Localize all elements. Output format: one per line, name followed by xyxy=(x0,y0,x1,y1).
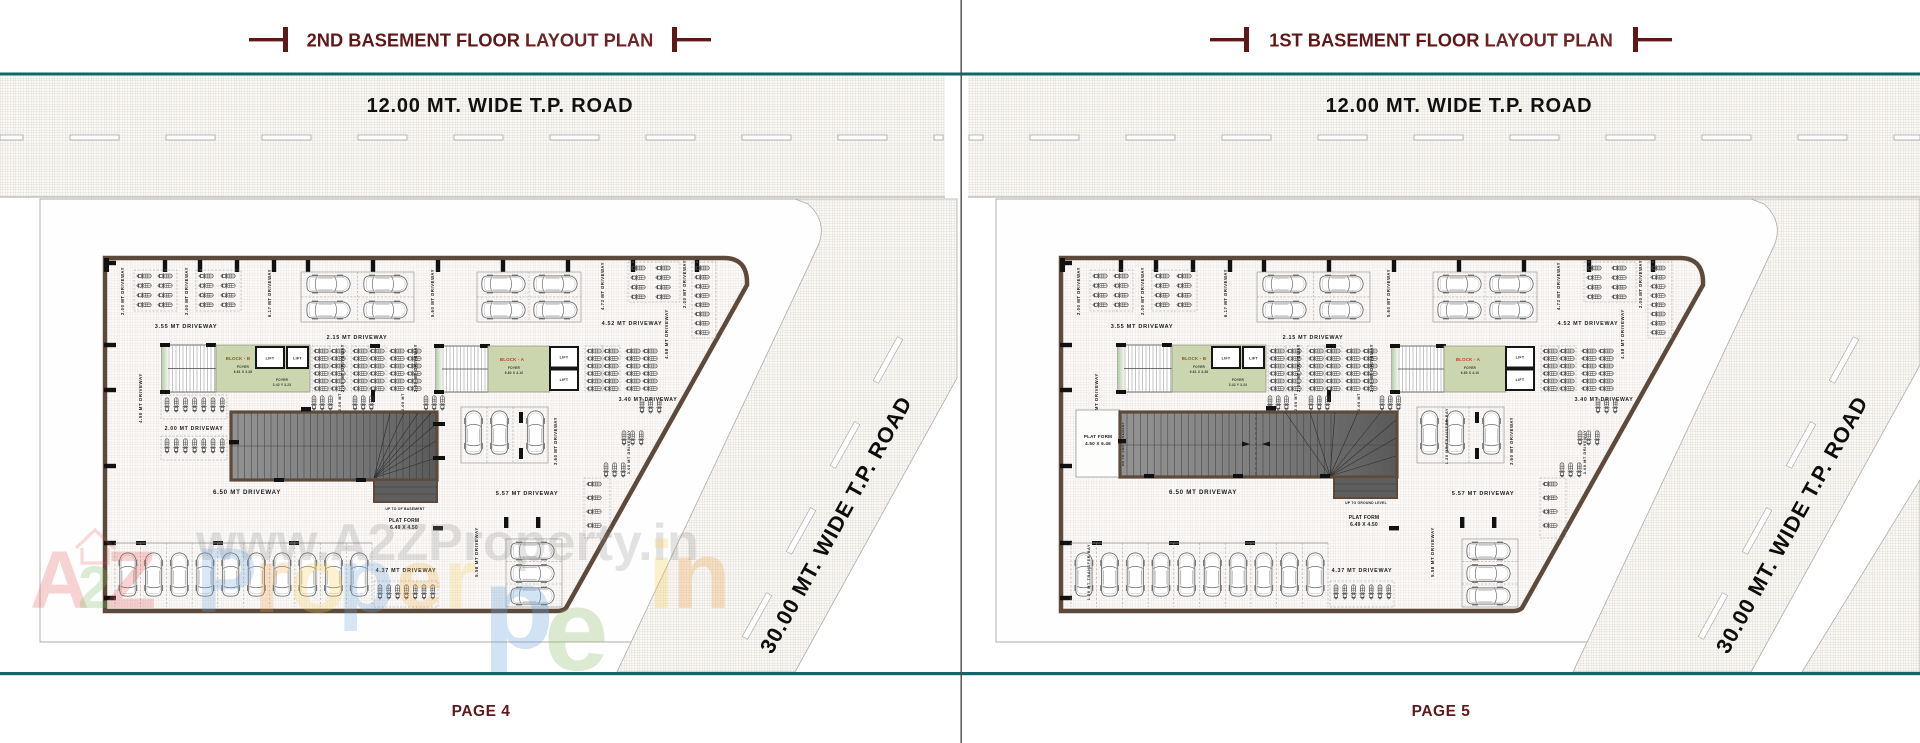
svg-text:PAGE 4: PAGE 4 xyxy=(452,703,511,720)
svg-text:3.60 MT DRIVEWAY: 3.60 MT DRIVEWAY xyxy=(1509,417,1514,465)
svg-text:FOYER: FOYER xyxy=(1232,378,1244,382)
svg-text:3.55 MT DRIVEWAY: 3.55 MT DRIVEWAY xyxy=(155,324,218,330)
svg-text:4.58 MT DRIVEWAY: 4.58 MT DRIVEWAY xyxy=(664,309,669,359)
svg-text:FOYER: FOYER xyxy=(1464,366,1476,370)
svg-text:4.52 MT DRIVEWAY: 4.52 MT DRIVEWAY xyxy=(602,321,663,327)
svg-text:2ND BASEMENT FLOOR LAYOUT PLAN: 2ND BASEMENT FLOOR LAYOUT PLAN xyxy=(307,30,654,51)
svg-text:BLOCK - B: BLOCK - B xyxy=(226,356,250,361)
svg-text:4.52 MT DRIVEWAY: 4.52 MT DRIVEWAY xyxy=(1558,321,1619,327)
svg-text:FOYER: FOYER xyxy=(508,366,520,370)
svg-text:2.00 MT DRIVEWAY: 2.00 MT DRIVEWAY xyxy=(340,344,345,392)
svg-text:4.37 MT DRIVEWAY: 4.37 MT DRIVEWAY xyxy=(1332,568,1393,574)
svg-text:2.15 MT DRIVEWAY: 2.15 MT DRIVEWAY xyxy=(1283,335,1344,341)
svg-text:4.73 MT DRIVEWAY: 4.73 MT DRIVEWAY xyxy=(600,262,605,310)
svg-text:e: e xyxy=(544,565,609,695)
svg-text:n: n xyxy=(672,522,731,629)
svg-text:2.00 MT: 2.00 MT xyxy=(401,393,405,411)
svg-text:2.00 MT: 2.00 MT xyxy=(1294,393,1298,411)
svg-text:BLOCK - A: BLOCK - A xyxy=(500,357,525,362)
svg-text:3.40 MT DRIVEWAY: 3.40 MT DRIVEWAY xyxy=(1575,397,1634,403)
svg-text:3.55 MT DRIVEWAY: 3.55 MT DRIVEWAY xyxy=(1111,324,1174,330)
svg-text:LIFT: LIFT xyxy=(1516,378,1525,382)
svg-text:3.42 Y 3.23: 3.42 Y 3.23 xyxy=(1229,383,1247,387)
svg-text:1.20 MT TRANSFER BAY: 1.20 MT TRANSFER BAY xyxy=(1445,408,1449,464)
svg-text:5.60 MT DRIVEWAY: 5.60 MT DRIVEWAY xyxy=(1386,269,1391,317)
svg-text:UP TO GROUND LEVEL: UP TO GROUND LEVEL xyxy=(1345,501,1387,505)
svg-text:5.57 MT DRIVEWAY: 5.57 MT DRIVEWAY xyxy=(496,491,559,497)
svg-text:2.00 MT DRIVEWAY: 2.00 MT DRIVEWAY xyxy=(1369,344,1374,392)
svg-text:6.50 MT DRIVEWAY: 6.50 MT DRIVEWAY xyxy=(1169,489,1237,496)
svg-text:5.58 MT DRIVEWAY: 5.58 MT DRIVEWAY xyxy=(1430,527,1435,577)
svg-text:2.15 MT DRIVEWAY: 2.15 MT DRIVEWAY xyxy=(327,335,388,341)
svg-text:LIFT: LIFT xyxy=(560,356,569,360)
svg-text:LIFT: LIFT xyxy=(1249,357,1258,361)
svg-text:3.60 MT DRIVEWAY: 3.60 MT DRIVEWAY xyxy=(553,417,558,465)
svg-text:2.00 MT DRIVEWAY: 2.00 MT DRIVEWAY xyxy=(1140,267,1145,315)
svg-text:5.60 MT DRIVEWAY: 5.60 MT DRIVEWAY xyxy=(430,269,435,317)
svg-text:PLAT FORM: PLAT FORM xyxy=(1349,515,1380,521)
svg-text:4.73 MT DRIVEWAY: 4.73 MT DRIVEWAY xyxy=(1556,262,1561,310)
svg-text:DN TO 2ND BASEMENT: DN TO 2ND BASEMENT xyxy=(1121,422,1125,467)
svg-text:2.00 MT DRIVEWAY: 2.00 MT DRIVEWAY xyxy=(1296,344,1301,392)
svg-text:LIFT: LIFT xyxy=(1516,356,1525,360)
svg-text:2.00 MT: 2.00 MT xyxy=(1357,393,1361,411)
svg-text:p: p xyxy=(338,530,394,632)
svg-text:2.00 MT DRIVEWAY: 2.00 MT DRIVEWAY xyxy=(682,260,687,308)
svg-text:3.42 Y 3.23: 3.42 Y 3.23 xyxy=(273,383,291,387)
svg-text:12.00 MT. WIDE T.P. ROAD: 12.00 MT. WIDE T.P. ROAD xyxy=(367,95,634,117)
svg-text:6.50 MT DRIVEWAY: 6.50 MT DRIVEWAY xyxy=(213,489,281,496)
svg-text:6.80 X 4.10: 6.80 X 4.10 xyxy=(505,371,524,375)
svg-text:FOYER: FOYER xyxy=(237,365,249,369)
svg-text:FOYER: FOYER xyxy=(276,378,288,382)
svg-text:2.00 MT DRIVEWAY: 2.00 MT DRIVEWAY xyxy=(184,267,189,315)
svg-text:5.57 MT DRIVEWAY: 5.57 MT DRIVEWAY xyxy=(1452,491,1515,497)
svg-text:PLAT FORM: PLAT FORM xyxy=(1084,434,1112,439)
svg-text:2.00 MT DRIVEWAY: 2.00 MT DRIVEWAY xyxy=(1076,267,1081,315)
svg-text:6.17 MT DRIVEWAY: 6.17 MT DRIVEWAY xyxy=(267,269,272,317)
svg-text:2.00 MT DRIVEWAY: 2.00 MT DRIVEWAY xyxy=(120,267,125,315)
svg-text:1.20 MT TRANSFER BAY: 1.20 MT TRANSFER BAY xyxy=(1087,544,1091,600)
svg-text:r: r xyxy=(254,530,290,632)
svg-text:LIFT: LIFT xyxy=(293,357,302,361)
svg-text:6.80 X 4.10: 6.80 X 4.10 xyxy=(1461,371,1480,375)
svg-text:3.60 MT DRIVEWAY: 3.60 MT DRIVEWAY xyxy=(627,430,631,475)
svg-text:BLOCK - B: BLOCK - B xyxy=(1182,356,1206,361)
svg-text:PAGE 5: PAGE 5 xyxy=(1412,703,1471,720)
svg-text:6.61 X 3.38: 6.61 X 3.38 xyxy=(1190,370,1209,374)
svg-text:P: P xyxy=(196,530,257,632)
svg-text:LIFT: LIFT xyxy=(266,357,275,361)
svg-text:Z: Z xyxy=(106,535,156,626)
svg-text:FOYER: FOYER xyxy=(1193,365,1205,369)
svg-text:1ST BASEMENT FLOOR LAYOUT PLAN: 1ST BASEMENT FLOOR LAYOUT PLAN xyxy=(1269,30,1613,51)
svg-text:i: i xyxy=(648,522,675,629)
svg-text:6.49 X 4.50: 6.49 X 4.50 xyxy=(1350,522,1378,528)
svg-text:12.00 MT. WIDE T.P. ROAD: 12.00 MT. WIDE T.P. ROAD xyxy=(1326,95,1593,117)
svg-text:r: r xyxy=(444,532,477,626)
svg-text:4.58 MT DRIVEWAY: 4.58 MT DRIVEWAY xyxy=(1620,309,1625,359)
svg-text:4.50 MT DRIVEWAY: 4.50 MT DRIVEWAY xyxy=(138,373,143,423)
svg-text:6.61 X 3.38: 6.61 X 3.38 xyxy=(234,370,253,374)
svg-text:2.00 MT DRIVEWAY: 2.00 MT DRIVEWAY xyxy=(1638,260,1643,308)
svg-text:2.00 MT DRIVEWAY: 2.00 MT DRIVEWAY xyxy=(413,344,418,392)
svg-text:4.50 X 6.46: 4.50 X 6.46 xyxy=(1085,441,1111,446)
svg-text:UP TO OF BASEMENT: UP TO OF BASEMENT xyxy=(385,507,425,511)
svg-text:3.60 MT DRIVEWAY: 3.60 MT DRIVEWAY xyxy=(1583,430,1587,475)
svg-text:e: e xyxy=(396,532,443,626)
svg-text:LIFT: LIFT xyxy=(560,378,569,382)
svg-text:2.00 MT DRIVEWAY: 2.00 MT DRIVEWAY xyxy=(165,426,224,432)
svg-text:6.17 MT DRIVEWAY: 6.17 MT DRIVEWAY xyxy=(1223,269,1228,317)
svg-text:BLOCK - A: BLOCK - A xyxy=(1456,357,1481,362)
svg-text:LIFT: LIFT xyxy=(1222,357,1231,361)
svg-text:3.40 MT DRIVEWAY: 3.40 MT DRIVEWAY xyxy=(619,397,678,403)
svg-text:2.00 MT: 2.00 MT xyxy=(338,393,342,411)
